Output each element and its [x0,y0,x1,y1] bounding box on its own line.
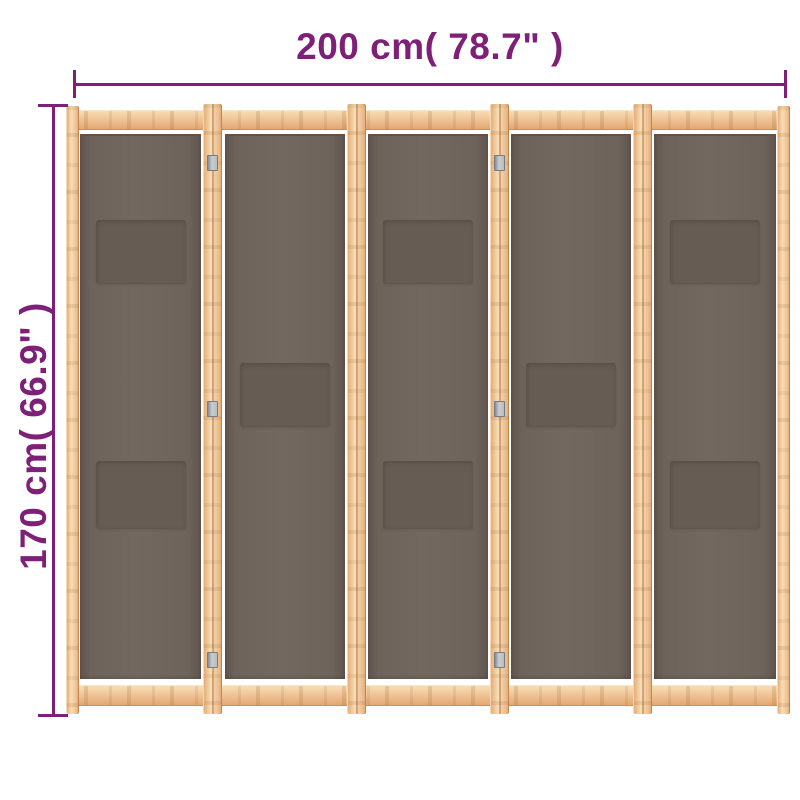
fabric-panel [368,134,488,679]
fabric-pocket [96,461,186,529]
height-dimension-line [52,104,55,717]
fabric-pocket [670,220,760,284]
wood-seam [642,104,644,714]
fabric-pocket [383,220,473,284]
fabric-panel [225,134,345,679]
junction-post [347,104,366,714]
fabric-pocket [96,220,186,284]
top-rail [66,110,790,130]
wood-seam [356,104,358,714]
fabric-panel [654,134,776,679]
width-dimension-line [73,83,787,86]
fabric-panel [511,134,631,679]
dimension-tick-icon [38,714,68,717]
fabric-panel [80,134,201,679]
dimension-tick-icon [38,104,68,107]
frame-stile [777,106,790,714]
height-dimension-label: 170 cm( 66.9" ) [12,128,56,744]
dimension-tick-icon [73,70,76,98]
hinge-icon [207,155,218,171]
fabric-pocket [670,461,760,529]
fabric-pocket [526,363,616,427]
junction-post [633,104,652,714]
hinge-icon [207,401,218,417]
hinge-icon [494,401,505,417]
hinge-icon [207,652,218,668]
fabric-pocket [240,363,330,427]
bottom-rail [66,685,790,706]
width-dimension-label: 200 cm( 78.7" ) [73,26,787,68]
product-dimension-image: 200 cm( 78.7" ) 170 cm( 66.9" ) [0,0,800,800]
hinge-icon [494,155,505,171]
room-divider [0,0,800,800]
hinge-icon [494,652,505,668]
frame-stile [66,106,79,714]
dimension-tick-icon [784,70,787,98]
fabric-pocket [383,461,473,529]
